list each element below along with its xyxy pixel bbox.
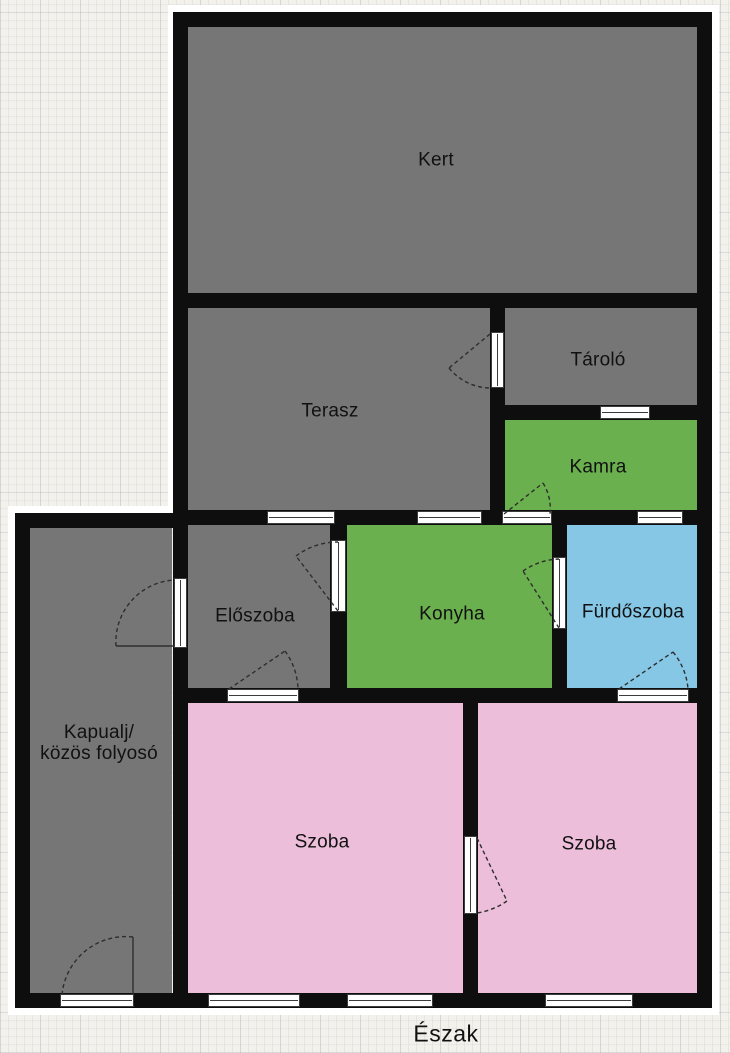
window-tarolo-kamra — [600, 406, 650, 419]
door-opening-kapualj-eloszoba — [174, 578, 187, 648]
window-szoba-2 — [545, 994, 633, 1007]
plan-margin-halo — [8, 1008, 719, 1015]
door-opening-furdoszoba-szoba — [617, 689, 689, 702]
plan-margin-halo — [8, 506, 175, 513]
wall-kapualj-left — [15, 513, 30, 1008]
wall-kert-bottom — [173, 293, 712, 308]
window-terasz-konyha — [417, 511, 482, 524]
wall-top — [173, 12, 712, 27]
plan-margin-halo — [8, 506, 15, 1011]
room-label-furdoszoba: Fürdőszoba — [582, 602, 684, 623]
window-terasz-eloszoba — [267, 511, 335, 524]
door-opening-eloszoba-szoba — [227, 689, 299, 702]
room-label-kapualj: Kapualj/közös folyosó — [40, 722, 158, 764]
door-opening-terasz-tarolo — [491, 332, 504, 388]
wall-kapualj-top — [15, 513, 175, 528]
plan-margin-halo — [168, 5, 719, 12]
wall-left-upper — [173, 12, 188, 528]
room-label-tarolo: Tároló — [570, 350, 625, 371]
door-opening-kamra — [502, 511, 552, 524]
room-label-terasz: Terasz — [301, 401, 358, 422]
plan-margin-halo — [712, 5, 719, 1015]
room-label-szoba-1: Szoba — [295, 832, 350, 853]
room-label-szoba-2: Szoba — [562, 834, 617, 855]
window-szoba-1-b — [347, 994, 433, 1007]
door-opening-eloszoba-konyha — [331, 540, 346, 612]
room-label-eloszoba: Előszoba — [215, 606, 295, 627]
room-label-kert: Kert — [418, 150, 454, 171]
window-szoba-1-a — [208, 994, 300, 1007]
room-label-konyha: Konyha — [419, 604, 485, 625]
door-opening-entrance — [60, 994, 134, 1007]
compass-north-label: Észak — [413, 1021, 478, 1048]
door-opening-szoba-szoba — [464, 836, 477, 914]
room-label-kamra: Kamra — [570, 457, 627, 478]
window-kamra-furdoszoba — [637, 511, 683, 524]
wall-terasz-tarolo — [490, 293, 505, 525]
door-opening-konyha-furdoszoba — [553, 557, 566, 629]
floor-plan: Észak KertTeraszTárolóKamraElőszobaKonyh… — [0, 0, 730, 1053]
